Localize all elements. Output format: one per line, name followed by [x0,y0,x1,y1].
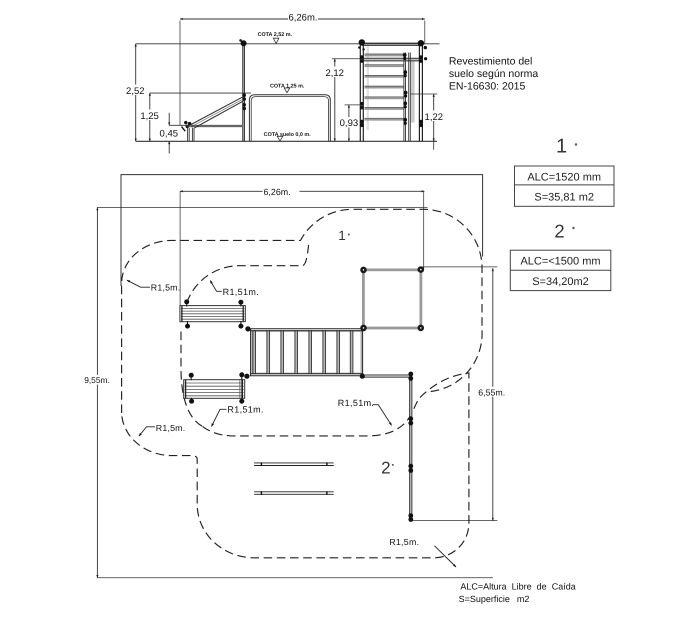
svg-text:6,26m.: 6,26m. [288,13,317,24]
svg-text:0,45: 0,45 [160,128,179,139]
svg-text:9,55m.: 9,55m. [84,375,110,385]
svg-text:EN-16630: 2015: EN-16630: 2015 [449,81,526,93]
svg-text:Revestimiento del: Revestimiento del [449,56,532,68]
svg-text:2,52: 2,52 [126,86,145,97]
svg-text:2,12: 2,12 [325,68,344,79]
svg-text:R1,5m.: R1,5m. [156,423,186,433]
svg-text:6,26m.: 6,26m. [264,187,291,197]
svg-text:R1,5m.: R1,5m. [389,537,419,547]
svg-text:ALC=<1500 mm: ALC=<1500 mm [520,256,600,268]
svg-text:suelo según norma: suelo según norma [449,68,538,80]
svg-text:ALC=Altura Libre de Caída: ALC=Altura Libre de Caída [460,582,575,592]
svg-text:R1,51m.: R1,51m. [227,405,263,415]
svg-text:R1,51m.: R1,51m. [338,398,374,408]
svg-text:COTA suelo 0,0 m.: COTA suelo 0,0 m. [264,132,312,138]
svg-text:S=34,20m2: S=34,20m2 [532,276,589,288]
svg-text:S=Superficie m2: S=Superficie m2 [459,594,530,604]
svg-text:2: 2 [381,459,390,478]
svg-text:S=35,81 m2: S=35,81 m2 [534,192,594,204]
svg-text:COTA 2,52 m.: COTA 2,52 m. [258,32,293,38]
svg-text:1: 1 [556,136,567,158]
svg-text:1,25: 1,25 [140,111,159,122]
svg-text:1: 1 [338,228,346,243]
svg-text:0,93: 0,93 [340,118,359,129]
svg-text:R1,51m.: R1,51m. [223,287,259,297]
svg-text:2: 2 [554,220,564,241]
svg-text:1,22: 1,22 [425,112,444,123]
svg-text:R1,5m.: R1,5m. [151,282,181,292]
svg-text:6,55m.: 6,55m. [478,388,505,398]
svg-text:ALC=1520 mm: ALC=1520 mm [527,171,601,183]
